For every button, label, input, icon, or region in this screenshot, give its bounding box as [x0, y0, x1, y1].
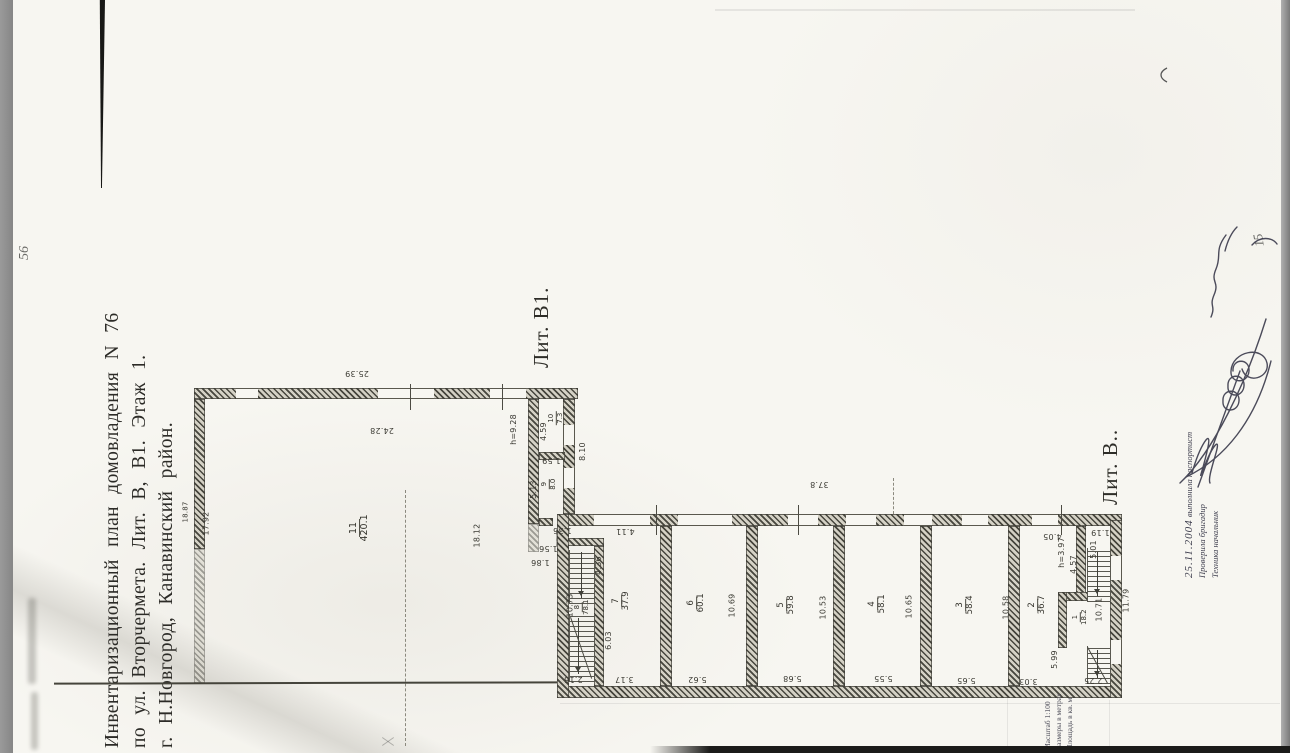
partition-6-5	[746, 526, 758, 686]
document-title: Инвентаризационный план домовладения N 7…	[99, 202, 185, 748]
dim-r7-left-a: 4.36	[594, 556, 603, 575]
window-gap	[594, 514, 650, 526]
stairwell8-wall-top	[568, 538, 604, 546]
building-label-b: Лит. В..	[1098, 429, 1123, 505]
dim-r5-depth: 10.53	[818, 596, 827, 620]
ink-smudge	[31, 692, 38, 750]
window-gap	[678, 514, 732, 526]
approval-executed: выполнила паспортист	[1184, 432, 1194, 517]
room-area: 18.2	[1081, 609, 1089, 625]
page-number-left: 56	[17, 230, 33, 260]
dim-b-right: 11.79	[1121, 589, 1130, 613]
dim-r7-width: 3.17	[615, 675, 634, 684]
window-gap	[236, 388, 258, 399]
partition-5-4	[833, 526, 845, 686]
dim-tick	[502, 384, 503, 410]
dim-stair1-b: 1.19	[1091, 528, 1110, 537]
room-label-8: 8 78.1	[574, 590, 590, 624]
window-gap	[1032, 514, 1058, 526]
stamp-scale: Масштаб 1:100	[1042, 694, 1053, 750]
room-area: 420.1	[361, 514, 371, 541]
scan-edge-right	[1281, 0, 1290, 753]
stamp-units: Размеры в метрах	[1053, 694, 1064, 750]
dim-r2-width: 3.03	[1019, 677, 1038, 686]
dim-r6-width: 5.62	[688, 675, 707, 684]
window-gap	[962, 514, 988, 526]
building-label-b1: Лит. В1.	[529, 287, 554, 368]
room-area: 8.0	[550, 479, 558, 490]
room-label-2: 2 36.7	[1028, 588, 1048, 622]
room-area: 58.1	[879, 594, 888, 613]
dim-tick	[798, 505, 799, 535]
ink-smudge	[28, 598, 36, 684]
dim-b-top: 37.8	[810, 480, 829, 489]
approval-line-3: Техника начальник	[1209, 408, 1222, 578]
scan-edge-bottom	[650, 746, 1290, 753]
scan-smudge	[715, 9, 1135, 11]
b1-wall-right	[528, 399, 539, 524]
dim-r7-top: 4.11	[616, 527, 635, 536]
room-label-7: 7 37.9	[612, 584, 632, 618]
window-gap	[563, 468, 575, 488]
dim-r2-b: 4.05	[1043, 532, 1062, 541]
dim-r4-width: 5.55	[874, 674, 893, 683]
fold-line	[560, 703, 1280, 704]
dim-r5-width: 5.68	[783, 674, 802, 683]
dim-r2-inner: 5.99	[1050, 650, 1059, 669]
room-label-10: 10 7.3	[548, 401, 564, 435]
room-area: 58.4	[967, 595, 976, 614]
window-gap	[563, 425, 575, 445]
room-label-1: 1 18.2	[1072, 600, 1088, 634]
room-label-11: 11 420.1	[349, 511, 371, 545]
title-line-1: Инвентаризационный план домовладения N 7…	[99, 202, 126, 748]
dim-r6-depth: 10.69	[727, 594, 736, 618]
dim-passage-b: 1.56	[539, 544, 558, 553]
window-gap	[1110, 640, 1122, 664]
dim-tick	[1061, 505, 1062, 535]
scan-edge-left	[0, 0, 13, 753]
partition-7-6	[660, 526, 672, 686]
dim-passage-c: 1.86	[531, 558, 550, 567]
dim-r7-left-b: 6.03	[604, 631, 613, 650]
window-gap	[490, 388, 526, 399]
b1-wall-left-lower	[194, 549, 205, 683]
dim-stair1-width: 2.25	[1084, 676, 1103, 685]
dim-b1-height: h=9.28	[509, 414, 518, 445]
scan-shadow	[0, 528, 506, 753]
fold-mark	[97, 0, 105, 188]
dim-stair8-depth: 10.73	[565, 594, 574, 618]
window-gap	[846, 514, 876, 526]
title-line-3: г. Н.Новгород, Канавинский район.	[153, 202, 180, 748]
room-area: 7.3	[557, 413, 565, 424]
stamp-area: Площадь в кв. м	[1064, 694, 1075, 750]
stair1-compartment-wall	[1058, 592, 1067, 648]
form-stamp: Масштаб 1:100 Размеры в метрах Площадь в…	[1042, 694, 1076, 750]
window-gap	[378, 388, 434, 399]
approval-date: 25.11.2004	[1183, 519, 1195, 578]
dim-r3-depth: 10.58	[1001, 596, 1010, 620]
check-mark	[1156, 66, 1170, 84]
room-area: 78.1	[583, 599, 591, 615]
dim-annex-low-width: 5.13	[529, 480, 538, 499]
partition-4-3	[920, 526, 932, 686]
b-wall-bottom	[557, 686, 1122, 698]
dim-annex-mid: 1.59	[542, 456, 561, 465]
room-label-3: 3 58.4	[956, 588, 976, 622]
window-gap	[904, 514, 932, 526]
scanned-floor-plan-page: 56 15 Инвентаризационный план домовладен…	[0, 0, 1290, 753]
approval-line-2: Проверила бригадир	[1196, 408, 1209, 578]
stair-direction-arrow	[578, 618, 579, 674]
dim-b1-left-outer: 18.87	[182, 501, 190, 522]
dim-tick	[656, 505, 657, 535]
room-label-6: 6 60.1	[687, 586, 707, 620]
room-area: 36.7	[1039, 595, 1048, 614]
dim-b1-top-outer: 25.39	[345, 369, 369, 378]
room-area: 60.1	[698, 593, 707, 612]
dim-tick	[410, 384, 411, 410]
dim-b1-left-inner: 17.92	[201, 512, 210, 536]
b-wall-right	[1110, 520, 1122, 698]
dim-stair1-a: 5.01	[1089, 540, 1098, 559]
dim-r2-a: 4.57	[1069, 555, 1078, 574]
dim-r3-width: 5.65	[957, 676, 976, 685]
dim-annex-top-width: 4.59	[539, 422, 548, 441]
dim-passage-a: 1.36	[553, 526, 572, 535]
passage-wall	[528, 524, 539, 552]
room-label-9: 9 8.0	[541, 467, 557, 501]
dim-r4-depth: 10.65	[904, 595, 913, 619]
dim-b1-right-inner: 18.12	[472, 524, 481, 548]
axis-dashed-line	[405, 490, 406, 746]
dim-extension-line	[893, 478, 894, 514]
room-label-4: 4 58.1	[868, 587, 888, 621]
dim-b-height: h=3.97	[1057, 537, 1066, 568]
annex-wall-bottom	[539, 518, 553, 526]
approval-line-1: 25.11.2004 выполнила паспортист	[1183, 408, 1196, 578]
window-gap	[1110, 556, 1122, 580]
room-area: 37.9	[623, 591, 632, 610]
room-label-5: 5 59.8	[777, 588, 797, 622]
dim-b1-top-inner: 24.28	[370, 426, 394, 435]
dim-stair1-depth: 10.71	[1094, 598, 1103, 622]
title-line-2: по ул. Вторчермета. Лит. В, В1. Этаж 1.	[126, 202, 153, 748]
dim-annex-depth: 8.10	[578, 442, 587, 461]
window-gap	[788, 514, 818, 526]
room-area: 59.8	[788, 595, 797, 614]
dim-stair8-width: 2.16	[564, 675, 583, 684]
approval-block: 25.11.2004 выполнила паспортист Проверил…	[1183, 408, 1227, 578]
